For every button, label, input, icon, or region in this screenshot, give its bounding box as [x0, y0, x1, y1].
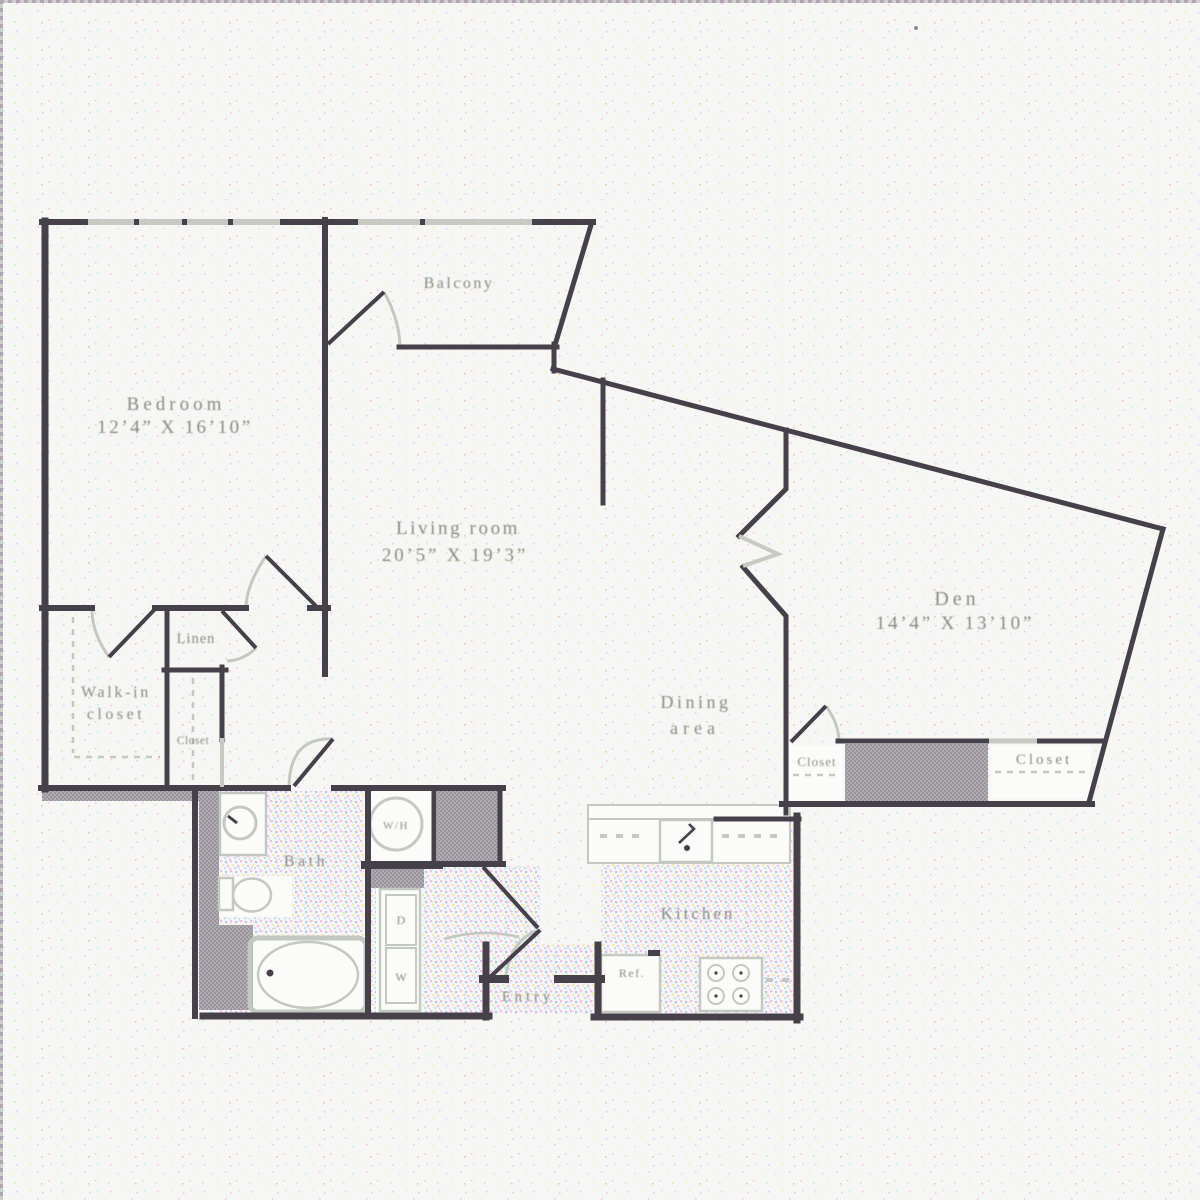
- svg-text:Walk-in: Walk-in: [81, 684, 151, 701]
- svg-text:area: area: [670, 718, 720, 738]
- svg-text:Ref.: Ref.: [619, 966, 645, 980]
- svg-text:W: W: [395, 970, 407, 984]
- svg-text:Linen: Linen: [177, 631, 216, 647]
- svg-text:Dining: Dining: [660, 692, 731, 712]
- svg-text:Living room: Living room: [396, 518, 520, 539]
- svg-text:Balcony: Balcony: [424, 275, 495, 292]
- svg-text:Closet: Closet: [177, 735, 210, 747]
- svg-text:12’4” X 16’10”: 12’4” X 16’10”: [97, 417, 253, 438]
- svg-text:W/H: W/H: [383, 820, 409, 832]
- svg-text:D: D: [397, 913, 406, 927]
- svg-text:20’5” X 19’3”: 20’5” X 19’3”: [382, 545, 528, 566]
- svg-text:14’4” X 13’10”: 14’4” X 13’10”: [876, 613, 1034, 634]
- svg-text:Closet: Closet: [1016, 752, 1072, 768]
- svg-text:Bedroom: Bedroom: [127, 394, 226, 415]
- svg-text:Entry: Entry: [502, 989, 554, 1005]
- svg-text:Den: Den: [934, 588, 979, 610]
- svg-text:Bath: Bath: [284, 853, 328, 870]
- svg-text:Closet: Closet: [797, 754, 836, 769]
- svg-text:Kitchen: Kitchen: [661, 904, 736, 923]
- svg-text:closet: closet: [87, 706, 145, 723]
